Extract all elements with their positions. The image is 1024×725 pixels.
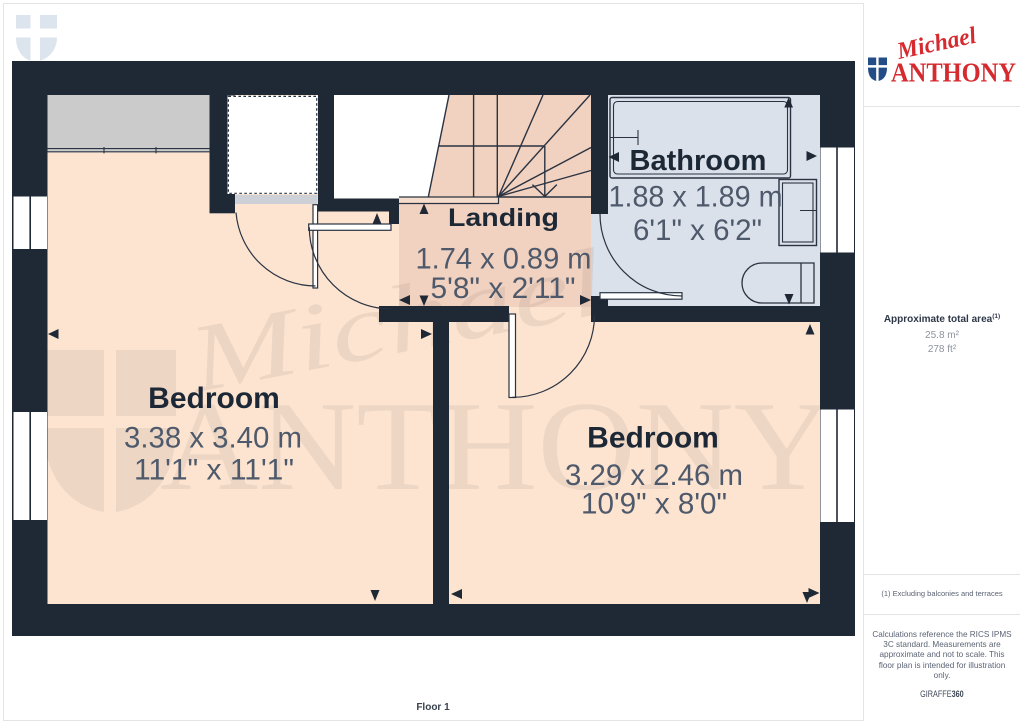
svg-text:10'9" x 8'0": 10'9" x 8'0" (581, 488, 727, 521)
svg-text:11'1" x 11'1": 11'1" x 11'1" (134, 454, 294, 487)
svg-text:Landing: Landing (448, 204, 559, 232)
svg-text:1.74 x 0.89 m: 1.74 x 0.89 m (416, 243, 592, 276)
svg-text:3.38 x 3.40 m: 3.38 x 3.40 m (124, 422, 302, 455)
svg-text:Bathroom: Bathroom (630, 145, 767, 177)
svg-text:5'8" x 2'11": 5'8" x 2'11" (431, 272, 576, 305)
svg-text:1.88 x 1.89 m: 1.88 x 1.89 m (609, 181, 783, 214)
svg-text:ANTHONY: ANTHONY (891, 57, 1016, 87)
svg-text:6'1" x 6'2": 6'1" x 6'2" (633, 214, 762, 247)
svg-text:Bedroom: Bedroom (587, 422, 719, 455)
svg-text:Bedroom: Bedroom (148, 382, 280, 415)
svg-text:Floor 1: Floor 1 (416, 702, 450, 713)
